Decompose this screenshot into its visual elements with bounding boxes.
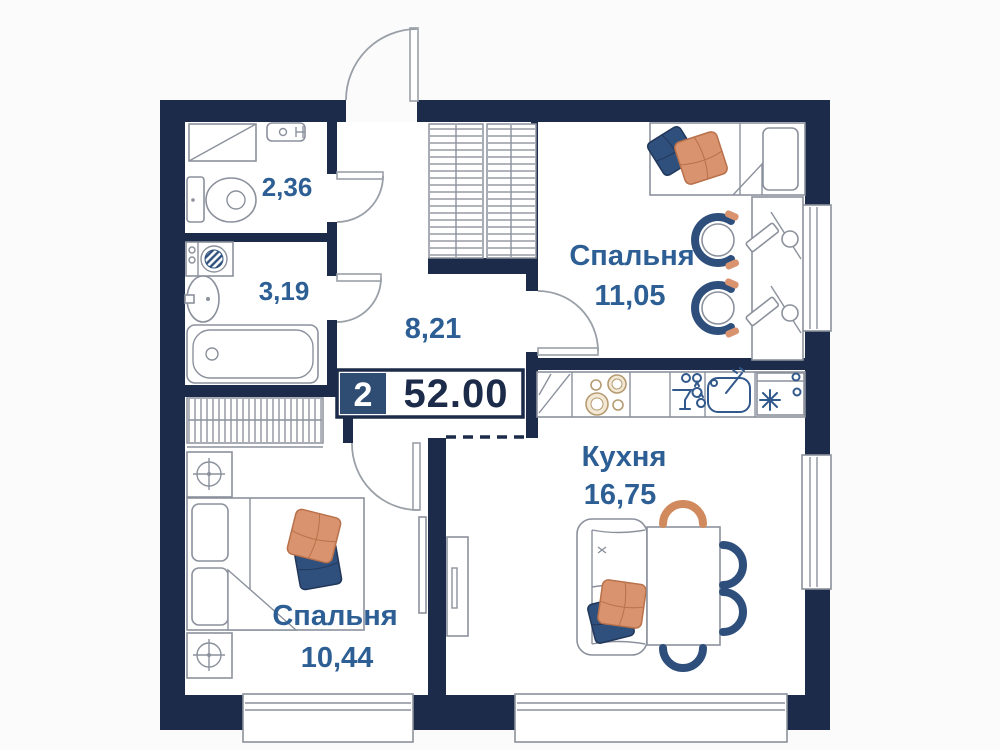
floorplan-svg: 2,36 3,19: [0, 0, 1000, 750]
closet-left: [429, 124, 483, 258]
closet-right: [487, 124, 536, 258]
tv: [419, 517, 426, 613]
tv-stand: [447, 537, 468, 636]
sofa-pillow-orange: [597, 579, 647, 629]
desk-chair-2: [695, 277, 740, 338]
kitchen-area-label: 16,75: [584, 479, 657, 511]
bedroom2-area-label: 10,44: [301, 642, 374, 674]
window-kitchen-right: [802, 455, 831, 589]
toilet: [187, 177, 256, 222]
shelf: [189, 124, 256, 161]
nightstand-bottom: [187, 633, 232, 678]
entrance-door: [346, 28, 418, 101]
badge-rooms-count: 2: [354, 376, 373, 414]
pillow-orange-2: [286, 508, 342, 564]
desk-chair-1: [695, 209, 740, 270]
wardrobe: [187, 398, 323, 447]
washing-machine: [186, 242, 233, 276]
bedroom1-name-label: Спальня: [569, 240, 694, 272]
bathroom-area-label: 3,19: [259, 276, 310, 306]
single-bed: [646, 123, 805, 195]
kitchen-name-label: Кухня: [582, 441, 667, 473]
bathtub: [187, 325, 318, 383]
bedroom1-area-label: 11,05: [595, 280, 666, 312]
snowflake-icon: [760, 390, 780, 410]
wall-sink: [267, 123, 305, 141]
floorplan-canvas: 2,36 3,19: [0, 0, 1000, 750]
badge-total-area: 52.00: [403, 372, 508, 416]
window-bedroom2-bottom: [243, 694, 413, 742]
window-bedroom1-right: [802, 205, 831, 331]
desk: [746, 197, 803, 360]
bedroom2-name-label: Спальня: [272, 600, 397, 632]
sofa: [577, 519, 647, 655]
fridge: [757, 373, 804, 415]
dining-table: [647, 527, 720, 645]
toilet-area-label: 2,36: [262, 172, 313, 202]
plan-badge: 2 52.00: [337, 370, 523, 417]
nightstand-top: [187, 452, 232, 497]
window-kitchen-bottom: [515, 694, 787, 742]
hallway-area-label: 8,21: [405, 313, 461, 345]
